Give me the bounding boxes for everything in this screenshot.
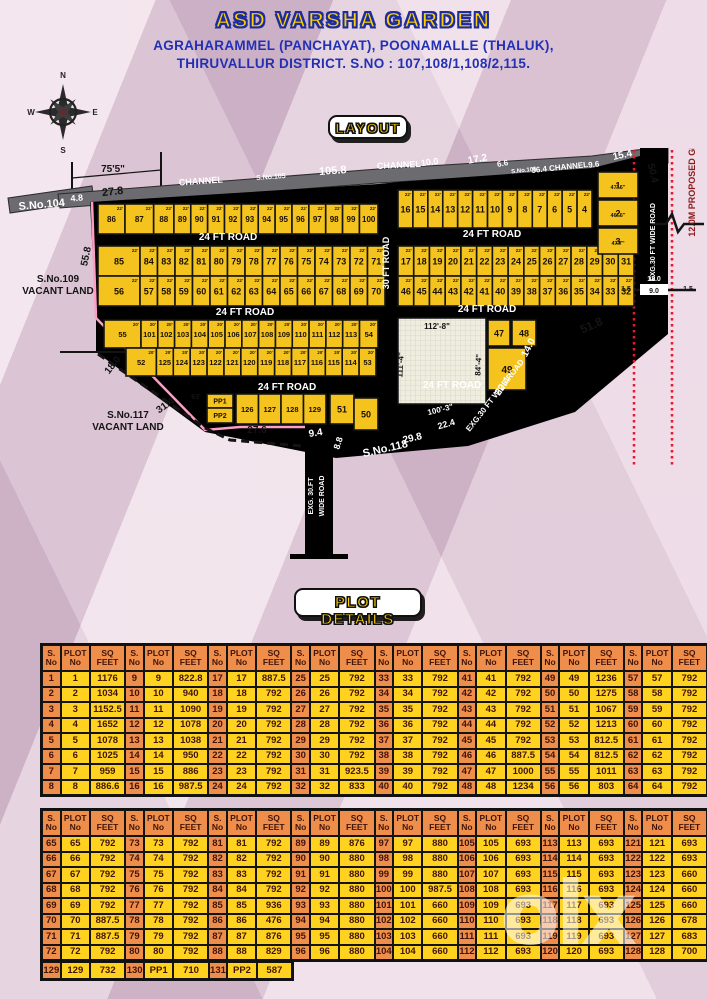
serial-no-cell: 27 [291,702,310,718]
plot-dim: 22' [324,248,330,253]
plot-dim: 22' [450,192,456,197]
plot-number-45: 45 [417,286,427,296]
plot-dim: 22' [437,248,443,253]
plot-no-cell: 96 [310,945,339,961]
plot-no-cell: 51 [559,702,588,718]
sq-feet-cell: 792 [173,867,208,883]
plot-number-121: 121 [226,358,239,367]
sq-feet-cell: 693 [672,836,707,852]
serial-no-cell: 32 [291,780,310,796]
plot-no-cell: 46 [476,749,505,765]
plot-number-63: 63 [249,286,259,296]
plot-number-38: 38 [527,286,537,296]
plot-number-41: 41 [480,286,490,296]
plot-details-badge: PLOT DETAILS [294,588,422,617]
serial-no-cell: 108 [458,883,477,899]
plot-no-cell: 24 [227,780,256,796]
plot-number-89: 89 [178,215,187,224]
plot-dim: 22' [500,278,506,283]
col-header: S. No [42,645,61,671]
plot-dim: 22' [202,278,208,283]
serial-no-cell: 31 [291,764,310,780]
serial-no-cell: 102 [375,914,394,930]
map-label: 75'5" [101,164,125,175]
sq-feet-cell: 822.8 [173,671,208,687]
sq-feet-cell: 792 [339,749,374,765]
plot-number-117: 117 [294,358,306,367]
sq-feet-cell: 792 [173,852,208,868]
col-header: SQ FEET [422,645,457,671]
serial-no-cell: 71 [42,929,61,945]
serial-no-cell: 83 [208,867,227,883]
plot-no-cell: 91 [310,867,339,883]
serial-no-cell: 70 [42,914,61,930]
plot-no-cell: 57 [642,671,671,687]
plot-no-cell: 78 [144,914,173,930]
serial-no-cell: 87 [208,929,227,945]
plot-dim: 22' [216,206,222,211]
serial-no-cell: 47 [458,764,477,780]
plot-no-cell: 85 [227,898,256,914]
sq-feet-cell: 1078 [173,718,208,734]
serial-no-cell: 43 [458,702,477,718]
serial-no-cell: 91 [291,867,310,883]
col-header: SQ FEET [90,645,125,671]
sq-feet-cell: 792 [256,687,291,703]
serial-no-cell: 112 [458,945,477,961]
serial-no-cell: 103 [375,929,394,945]
plot-dim: 22' [626,278,632,283]
plot-no-cell: 31 [310,764,339,780]
plot-number-58: 58 [161,286,171,296]
plot-no-cell: 126 [642,914,671,930]
plot-dim: 22' [594,278,600,283]
compass-n: N [60,71,66,80]
plot-no-cell: 7 [61,764,90,780]
plot-dim: 20' [301,322,307,327]
sq-feet-cell: 732 [90,962,125,979]
plot-number-15: 15 [415,204,425,214]
serial-no-cell: 36 [375,718,394,734]
col-header: S. No [541,810,560,836]
plot-number-60: 60 [196,286,206,296]
plot-number-120: 120 [243,358,256,367]
serial-no-cell: 62 [624,749,643,765]
plot-no-cell: 73 [144,836,173,852]
plot-number-114: 114 [345,358,358,367]
plot-dim: 22' [202,248,208,253]
plot-dim: 20' [234,322,240,327]
plot-dim: 22' [563,248,569,253]
sq-feet-cell: 792 [90,836,125,852]
map-label: 27.8 [101,185,124,199]
serial-no-cell: 7 [42,764,61,780]
plot-dim: 20' [165,350,171,355]
sq-feet-cell: 876 [339,836,374,852]
map-label: 24 FT ROAD [199,232,257,243]
plot-number-124: 124 [175,358,188,367]
plot-number-17: 17 [401,256,411,266]
sq-feet-cell: 792 [173,945,208,961]
plot-dim: 22' [435,192,441,197]
serial-no-cell: 49 [541,671,560,687]
map-label: 12.0M PROPOSED GRID OF ROAD [687,148,697,237]
plot-number-71: 71 [371,256,381,266]
serial-no-cell: 8 [42,780,61,796]
plot-no-cell: 26 [310,687,339,703]
plot-number-6: 6 [552,204,557,214]
serial-no-cell: 88 [208,945,227,961]
plot-dim: 22' [484,278,490,283]
plot-no-cell: 36 [393,718,422,734]
plot-no-cell: 97 [393,836,422,852]
map-label: 55.8 [79,245,94,267]
serial-no-cell: 55 [541,764,560,780]
sq-feet-cell: 693 [672,852,707,868]
plot-number-102: 102 [160,330,173,339]
serial-no-cell: 105 [458,836,477,852]
plot-no-cell: 123 [642,867,671,883]
col-header: S. No [208,645,227,671]
sq-feet-cell: 660 [422,929,457,945]
plot-dim: 22' [484,248,490,253]
plot-number-123: 123 [192,358,205,367]
serial-no-cell: 95 [291,929,310,945]
plot-number-8: 8 [522,204,527,214]
plot-no-cell: 104 [393,945,422,961]
plot-number-92: 92 [228,215,237,224]
map-label: 46'-6" [611,213,626,219]
map-label: EXG. 30.FT [308,477,315,515]
plot-number-13: 13 [445,204,455,214]
serial-no-cell: 39 [375,764,394,780]
plot-number-14: 14 [430,204,440,214]
serial-no-cell: 24 [208,780,227,796]
serial-no-cell: 16 [125,780,144,796]
plot-dim: 22' [532,248,538,253]
sq-feet-cell: 880 [339,914,374,930]
sq-feet-cell: 880 [339,867,374,883]
col-header: S. No [541,645,560,671]
sq-feet-cell: 792 [256,883,291,899]
serial-no-cell: 17 [208,671,227,687]
plot-dim: 20' [334,350,340,355]
plot-number-97: 97 [313,215,322,224]
map-label: 24 FT ROAD [423,380,481,391]
plot-number-80: 80 [214,256,224,266]
sq-feet-cell: 1275 [589,687,624,703]
plot-dim: 22' [405,192,411,197]
plot-no-cell: 35 [393,702,422,718]
plot-number-18: 18 [417,256,427,266]
serial-no-cell: 90 [291,852,310,868]
plot-number-7: 7 [537,204,542,214]
sq-feet-cell: 792 [339,718,374,734]
plot-number-5: 5 [567,204,572,214]
plot-number-100: 100 [362,215,376,224]
col-header: SQ FEET [339,645,374,671]
plot-dim: 20' [267,350,273,355]
sq-feet-cell: 959 [90,764,125,780]
sq-feet-cell: 923.5 [339,764,374,780]
sq-feet-cell: 587 [257,962,292,979]
serial-no-cell: 35 [375,702,394,718]
plot-dim: 22' [184,278,190,283]
plot-number-51: 51 [337,404,347,414]
sq-feet-cell: 987.5 [422,883,457,899]
serial-no-cell: 18 [208,687,227,703]
sq-feet-cell: 710 [173,962,208,979]
plot-number-116: 116 [311,358,323,367]
plot-details-table-1: S. NoPLOT NoSQ FEETS. NoPLOT NoSQ FEETS.… [40,643,707,797]
plot-no-cell: 10 [144,687,173,703]
sq-feet-cell: 792 [422,749,457,765]
plot-no-cell: 50 [559,687,588,703]
plot-dim: 20' [150,322,156,327]
plot-number-23: 23 [495,256,505,266]
serial-no-cell: 76 [125,883,144,899]
sq-feet-cell: 792 [339,687,374,703]
serial-no-cell: 104 [375,945,394,961]
plot-number-34: 34 [590,286,600,296]
map-label: VACANT LAND [92,422,163,433]
plot-dim: 22' [342,278,348,283]
plot-dim: 22' [351,206,357,211]
sq-feet-cell: 792 [90,898,125,914]
serial-no-cell: 59 [624,702,643,718]
plot-no-cell: 84 [227,883,256,899]
serial-no-cell: 9 [125,671,144,687]
plot-no-cell: 72 [61,945,90,961]
sq-feet-cell: 792 [672,733,707,749]
plot-no-cell: 25 [310,671,339,687]
sq-feet-cell: 792 [506,733,541,749]
plot-number-61: 61 [214,286,224,296]
col-header: PLOT No [227,810,256,836]
serial-no-cell: 46 [458,749,477,765]
plot-no-cell: 20 [227,718,256,734]
plot-dim: 22' [149,248,155,253]
plot-no-cell: 6 [61,749,90,765]
plot-dim: 22' [149,278,155,283]
serial-no-cell: 5 [42,733,61,749]
col-header: S. No [125,810,144,836]
sq-feet-cell: 792 [90,852,125,868]
sq-feet-cell: 792 [672,671,707,687]
serial-no-cell: 129 [42,962,61,979]
flyer-page: ASD VARSHA GARDEN AGRAHARAMMEL (PANCHAYA… [0,0,707,999]
serial-no-cell: 12 [125,718,144,734]
plot-number-66: 66 [301,286,311,296]
sq-feet-cell: 1234 [506,780,541,796]
serial-no-cell: 130 [125,962,144,979]
plot-no-cell: 12 [144,718,173,734]
plot-no-cell: 8 [61,780,90,796]
serial-no-cell: 3 [42,702,61,718]
plot-no-cell: 21 [227,733,256,749]
plot-dim: 20' [148,350,154,355]
plot-number-11: 11 [475,204,485,214]
plot-dim: 22' [465,192,471,197]
serial-no-cell: 65 [42,836,61,852]
col-header: SQ FEET [256,810,291,836]
serial-no-cell: 131 [209,962,228,979]
plot-dim: 20' [233,350,239,355]
plot-no-cell: 5 [61,733,90,749]
plot-number-74: 74 [319,256,329,266]
col-header: S. No [375,645,394,671]
sq-feet-cell: 792 [672,702,707,718]
serial-no-cell: 22 [208,749,227,765]
plot-dim: 22' [254,248,260,253]
sq-feet-cell: 792 [506,687,541,703]
plot-dim: 22' [184,248,190,253]
plot-no-cell: 99 [393,867,422,883]
serial-no-cell: 101 [375,898,394,914]
plot-no-cell: 52 [559,718,588,734]
plot-dim: 22' [183,206,189,211]
col-header: S. No [208,810,227,836]
plot-dim: 22' [117,206,123,211]
plot-number-77: 77 [266,256,276,266]
plot-no-cell: 16 [144,780,173,796]
plot-number-53: 53 [363,358,371,367]
plot-no-cell: 64 [642,780,671,796]
plot-no-cell: 76 [144,883,173,899]
sq-feet-cell: 792 [672,718,707,734]
serial-no-cell: 10 [125,687,144,703]
plot-no-cell: 77 [144,898,173,914]
map-label: 24 FT ROAD [216,307,274,318]
plot-no-cell: 124 [642,883,671,899]
map-label: S.No.109 [37,274,80,285]
serial-no-cell: 50 [541,687,560,703]
plot-dim: 22' [284,206,290,211]
plot-no-cell: 2 [61,687,90,703]
plot-dim: 22' [359,278,365,283]
col-header: PLOT No [310,645,339,671]
col-header: PLOT No [61,645,90,671]
plot-number-127: 127 [263,405,276,414]
plot-number-110: 110 [295,330,307,339]
map-label: 27.6 [247,425,267,436]
plot-no-cell: 90 [310,852,339,868]
plot-no-cell: 28 [310,718,339,734]
plot-number-119: 119 [260,358,272,367]
sq-feet-cell: 792 [422,702,457,718]
plot-dim: 20' [216,350,222,355]
plot-number-68: 68 [336,286,346,296]
plot-number-43: 43 [448,286,458,296]
serial-no-cell: 21 [208,733,227,749]
col-header: SQ FEET [90,810,125,836]
plot-dim: 22' [500,248,506,253]
plot-no-cell: 45 [476,733,505,749]
sq-feet-cell: 1067 [589,702,624,718]
sq-feet-cell: 1236 [589,671,624,687]
sq-feet-cell: 792 [256,780,291,796]
sq-feet-cell: 1038 [173,733,208,749]
plot-number-57: 57 [144,286,154,296]
plot-number-128: 128 [286,405,299,414]
sq-feet-cell: 1011 [589,764,624,780]
sq-feet-cell: 936 [256,898,291,914]
plot-dim: 22' [237,248,243,253]
serial-no-cell: 23 [208,764,227,780]
plot-dim: 22' [219,278,225,283]
serial-no-cell: 85 [208,898,227,914]
plot-number-37: 37 [542,286,552,296]
plot-number-87: 87 [135,215,144,224]
plot-no-cell: 92 [310,883,339,899]
sq-feet-cell: 1213 [589,718,624,734]
plot-dim: 22' [516,278,522,283]
plot-dim: 22' [469,248,475,253]
plot-dim: 22' [267,206,273,211]
plot-no-cell: 32 [310,780,339,796]
plot-number-22: 22 [480,256,490,266]
plot-dim: 22' [509,192,515,197]
plot-number-62: 62 [231,286,241,296]
plot-no-cell: 81 [227,836,256,852]
col-header: S. No [375,810,394,836]
plot-number-125: 125 [159,358,172,367]
address-line-2: THIRUVALLUR DISTRICT. S.NO : 107,108/1,1… [0,56,707,71]
serial-no-cell: 74 [125,852,144,868]
sq-feet-cell: 792 [173,898,208,914]
plot-number-67: 67 [319,286,329,296]
plot-number-94: 94 [262,215,271,224]
plot-number-109: 109 [278,330,291,339]
sq-feet-cell: 886 [173,764,208,780]
col-header: SQ FEET [422,810,457,836]
sq-feet-cell: 1652 [90,718,125,734]
map-label: 4.8 [70,192,83,203]
plot-dim: 20' [133,322,139,327]
sq-feet-cell: 792 [173,929,208,945]
plot-no-cell: 80 [144,945,173,961]
plot-no-cell: 3 [61,702,90,718]
plot-no-cell: 82 [227,852,256,868]
serial-no-cell: 51 [541,702,560,718]
plot-no-cell: 125 [642,898,671,914]
plot-dim: 22' [200,206,206,211]
sq-feet-cell: 887.5 [256,671,291,687]
col-header: SQ FEET [173,645,208,671]
plot-no-cell: 9 [144,671,173,687]
map-label: 84'-4" [473,354,483,376]
plot-number-90: 90 [195,215,204,224]
plot-no-cell: 33 [393,671,422,687]
serial-no-cell: 110 [458,914,477,930]
serial-no-cell: 6 [42,749,61,765]
col-header: PLOT No [227,645,256,671]
plot-number-115: 115 [328,358,340,367]
col-header: SQ FEET [672,645,707,671]
sq-feet-cell: 792 [506,671,541,687]
col-header: S. No [624,810,643,836]
plot-number-44: 44 [432,286,442,296]
plot-no-cell: 113 [559,836,588,852]
plot-dim: 22' [335,206,341,211]
plot-number-50: 50 [361,409,371,419]
plot-number-103: 103 [177,330,190,339]
compass-w: W [27,108,35,117]
plot-no-cell: 102 [393,914,422,930]
sq-feet-cell: 880 [339,929,374,945]
plot-no-cell: 58 [642,687,671,703]
plot-dim: 22' [569,192,575,197]
